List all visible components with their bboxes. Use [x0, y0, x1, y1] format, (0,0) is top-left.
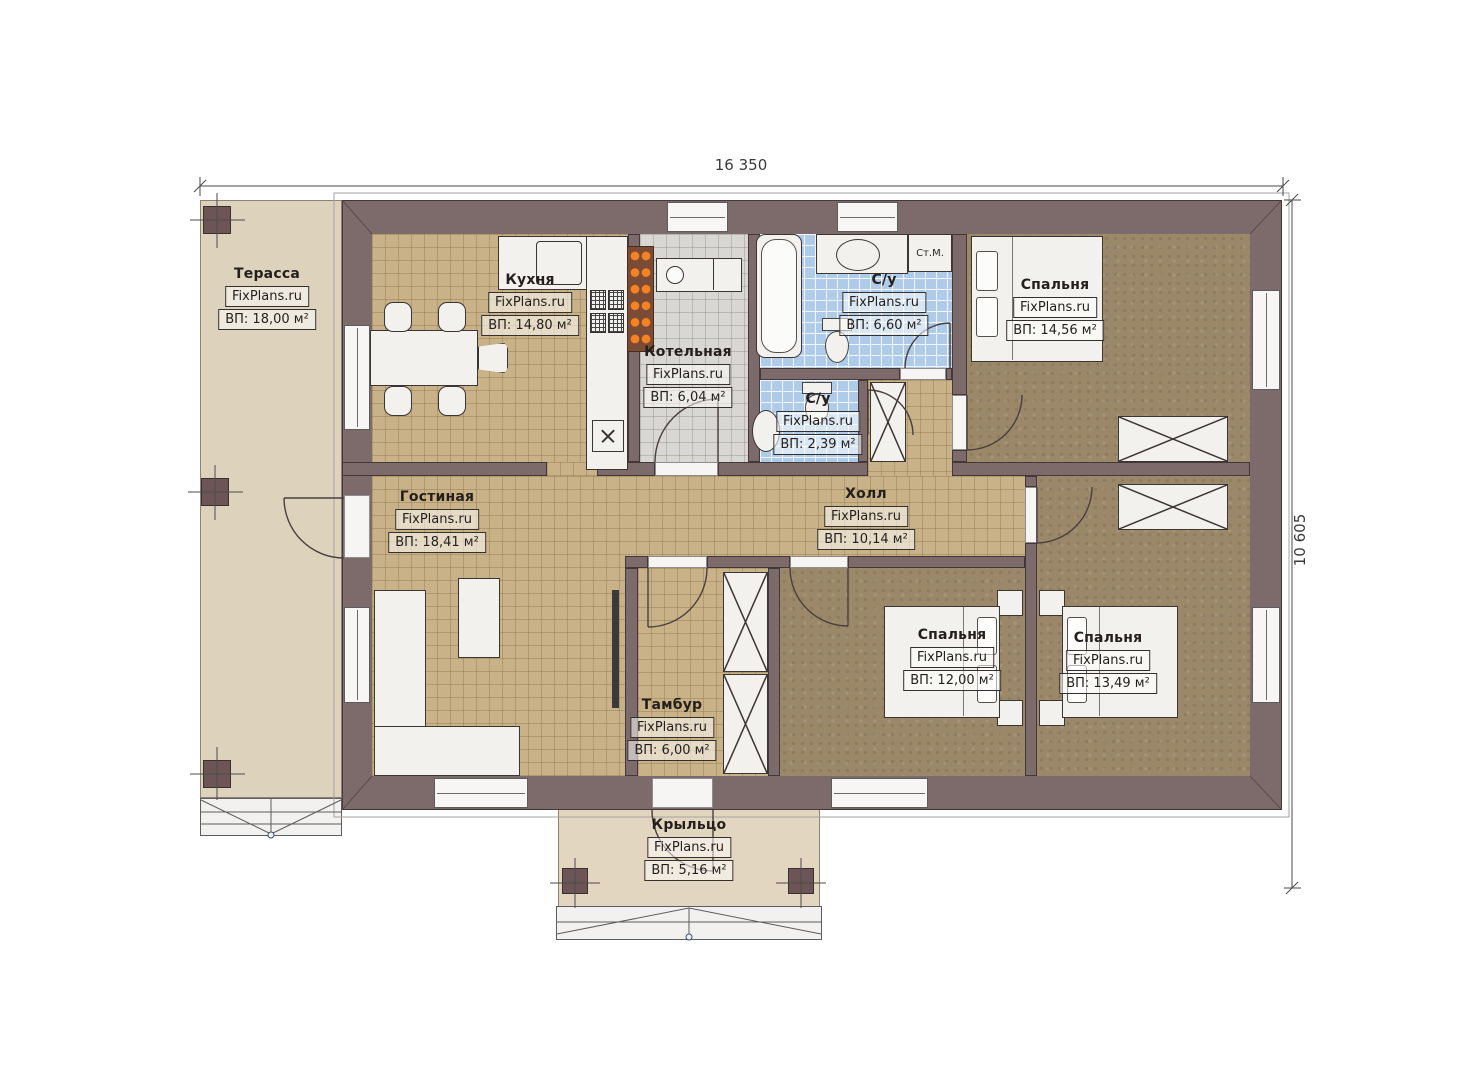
window: [434, 778, 528, 808]
bath-sink: [836, 239, 880, 271]
coffee-table: [458, 578, 500, 658]
watermark-box: FixPlans.ru: [395, 509, 479, 530]
room-label-porch: Крыльцо FixPlans.ru ВП: 5,16 м²: [644, 817, 733, 881]
room-label-bathroom-main: С/у FixPlans.ru ВП: 6,60 м²: [839, 272, 928, 336]
flame-dots-icon: [630, 250, 652, 350]
room-name: Тамбур: [642, 697, 703, 713]
vestibule-door-opening: [648, 556, 707, 568]
bathroom-main-door-opening: [900, 368, 946, 380]
wall: [768, 568, 780, 776]
area-box: ВП: 18,41 м²: [388, 532, 486, 553]
wardrobe: [1118, 484, 1228, 530]
room-label-vestibule: Тамбур FixPlans.ru ВП: 6,00 м²: [627, 697, 716, 761]
wall: [952, 462, 1250, 476]
burner-icon: [590, 313, 606, 333]
watermark-box: FixPlans.ru: [1066, 650, 1150, 671]
room-name: Кухня: [505, 272, 554, 288]
dining-chair: [384, 302, 412, 332]
nightstand: [997, 700, 1023, 726]
porch-post: [788, 868, 814, 894]
room-name: Спальня: [918, 627, 987, 643]
kitchen-sink-cross-icon: [592, 420, 624, 452]
wall: [1025, 543, 1037, 776]
watermark-box: FixPlans.ru: [910, 647, 994, 668]
vestibule-wardrobe: [723, 674, 768, 774]
sofa-section: [374, 590, 426, 738]
dining-chair: [438, 302, 466, 332]
boiler-divider: [713, 259, 714, 290]
room-name: Терасса: [234, 266, 300, 282]
boiler-unit: [656, 258, 742, 292]
area-box: ВП: 14,80 м²: [481, 315, 579, 336]
watermark-box: FixPlans.ru: [225, 286, 309, 307]
area-box: ВП: 5,16 м²: [644, 860, 733, 881]
sofa-section: [374, 726, 520, 776]
porch-post: [562, 868, 588, 894]
burner-icon: [608, 313, 624, 333]
dining-chair: [384, 386, 412, 416]
room-name: Спальня: [1021, 277, 1090, 293]
room-name: Котельная: [644, 344, 732, 360]
window: [344, 607, 370, 703]
room-label-kitchen: Кухня FixPlans.ru ВП: 14,80 м²: [481, 272, 579, 336]
area-box: ВП: 6,00 м²: [627, 740, 716, 761]
pillow: [976, 297, 998, 337]
wardrobe-x-icon: [871, 383, 905, 461]
watermark-box: FixPlans.ru: [488, 292, 572, 313]
wardrobe: [1118, 416, 1228, 462]
wall: [952, 450, 967, 462]
floor-plan: Ст.М.: [0, 0, 1473, 1080]
area-box: ВП: 18,00 м²: [218, 309, 316, 330]
room-label-bedroom-top: Спальня FixPlans.ru ВП: 14,56 м²: [1006, 277, 1104, 341]
hall-floor: [597, 476, 1025, 568]
area-box: ВП: 2,39 м²: [773, 434, 862, 455]
room-label-bedroom-left: Спальня FixPlans.ru ВП: 12,00 м²: [903, 627, 1001, 691]
wall: [718, 462, 868, 476]
area-box: ВП: 6,60 м²: [839, 315, 928, 336]
hall-wardrobe: [870, 382, 906, 462]
room-name: С/у: [871, 272, 896, 288]
wall: [760, 368, 900, 380]
area-box: ВП: 13,49 м²: [1059, 673, 1157, 694]
terrace-post: [203, 206, 231, 234]
bedroom-right-door-opening: [1025, 487, 1037, 543]
wall: [848, 556, 1025, 568]
terrace-post: [201, 478, 229, 506]
watermark-box: FixPlans.ru: [824, 506, 908, 527]
room-label-boiler: Котельная FixPlans.ru ВП: 6,04 м²: [643, 344, 732, 408]
watermark-box: FixPlans.ru: [776, 411, 860, 432]
bedroom-top-door-opening: [952, 395, 967, 450]
dining-table: [370, 330, 478, 386]
area-box: ВП: 6,04 м²: [643, 387, 732, 408]
dimension-line-top: [194, 177, 1289, 196]
watermark-box: FixPlans.ru: [1013, 297, 1097, 318]
room-name: Холл: [845, 486, 887, 502]
nightstand: [997, 590, 1023, 616]
wardrobe-x-icon: [724, 675, 767, 773]
tv: [612, 590, 619, 708]
watermark-box: FixPlans.ru: [842, 292, 926, 313]
room-label-hall: Холл FixPlans.ru ВП: 10,14 м²: [817, 486, 915, 550]
dimension-height-label: 10 605: [1291, 514, 1309, 567]
wall: [1025, 476, 1037, 487]
window: [837, 202, 898, 232]
room-label-bedroom-right: Спальня FixPlans.ru ВП: 13,49 м²: [1059, 630, 1157, 694]
terrace-steps: [200, 798, 342, 836]
room-label-living: Гостиная FixPlans.ru ВП: 18,41 м²: [388, 489, 486, 553]
window: [667, 202, 728, 232]
watermark-box: FixPlans.ru: [646, 364, 730, 385]
area-box: ВП: 14,56 м²: [1006, 320, 1104, 341]
area-box: ВП: 12,00 м²: [903, 670, 1001, 691]
dining-armchair: [478, 343, 508, 373]
wall: [946, 368, 952, 380]
porch-steps: [556, 906, 822, 940]
room-name: Гостиная: [400, 489, 474, 505]
watermark-box: FixPlans.ru: [630, 717, 714, 738]
boiler-door-opening: [655, 462, 718, 476]
entrance-door-opening: [652, 778, 713, 808]
terrace-post: [203, 760, 231, 788]
washing-machine: Ст.М.: [908, 234, 952, 272]
dimension-width-label: 16 350: [715, 156, 768, 174]
boiler-dial-icon: [666, 266, 684, 284]
room-label-terrace: Терасса FixPlans.ru ВП: 18,00 м²: [218, 266, 316, 330]
dining-chair: [438, 386, 466, 416]
window: [1252, 607, 1280, 703]
wall: [342, 462, 547, 476]
watermark-box: FixPlans.ru: [647, 837, 731, 858]
room-label-bathroom-small: С/у FixPlans.ru ВП: 2,39 м²: [773, 391, 862, 455]
bathtub: [756, 234, 802, 358]
window: [344, 325, 370, 430]
window: [831, 778, 928, 808]
room-name: Крыльцо: [652, 817, 727, 833]
window: [1252, 290, 1280, 390]
room-name: Спальня: [1074, 630, 1143, 646]
vestibule-wardrobe: [723, 572, 768, 672]
washing-machine-label: Ст.М.: [909, 235, 951, 271]
bedroom-left-door-opening: [790, 556, 848, 568]
wardrobe-x-icon: [1119, 417, 1227, 461]
wall: [625, 556, 648, 568]
pillow: [976, 251, 998, 291]
burner-icon: [590, 290, 606, 310]
room-name: С/у: [805, 391, 830, 407]
wall: [707, 556, 790, 568]
wall: [952, 234, 967, 395]
wardrobe-x-icon: [724, 573, 767, 671]
burner-icon: [608, 290, 624, 310]
wardrobe-x-icon: [1119, 485, 1227, 529]
terrace-door-opening: [344, 495, 370, 558]
stove: [588, 288, 626, 336]
area-box: ВП: 10,14 м²: [817, 529, 915, 550]
